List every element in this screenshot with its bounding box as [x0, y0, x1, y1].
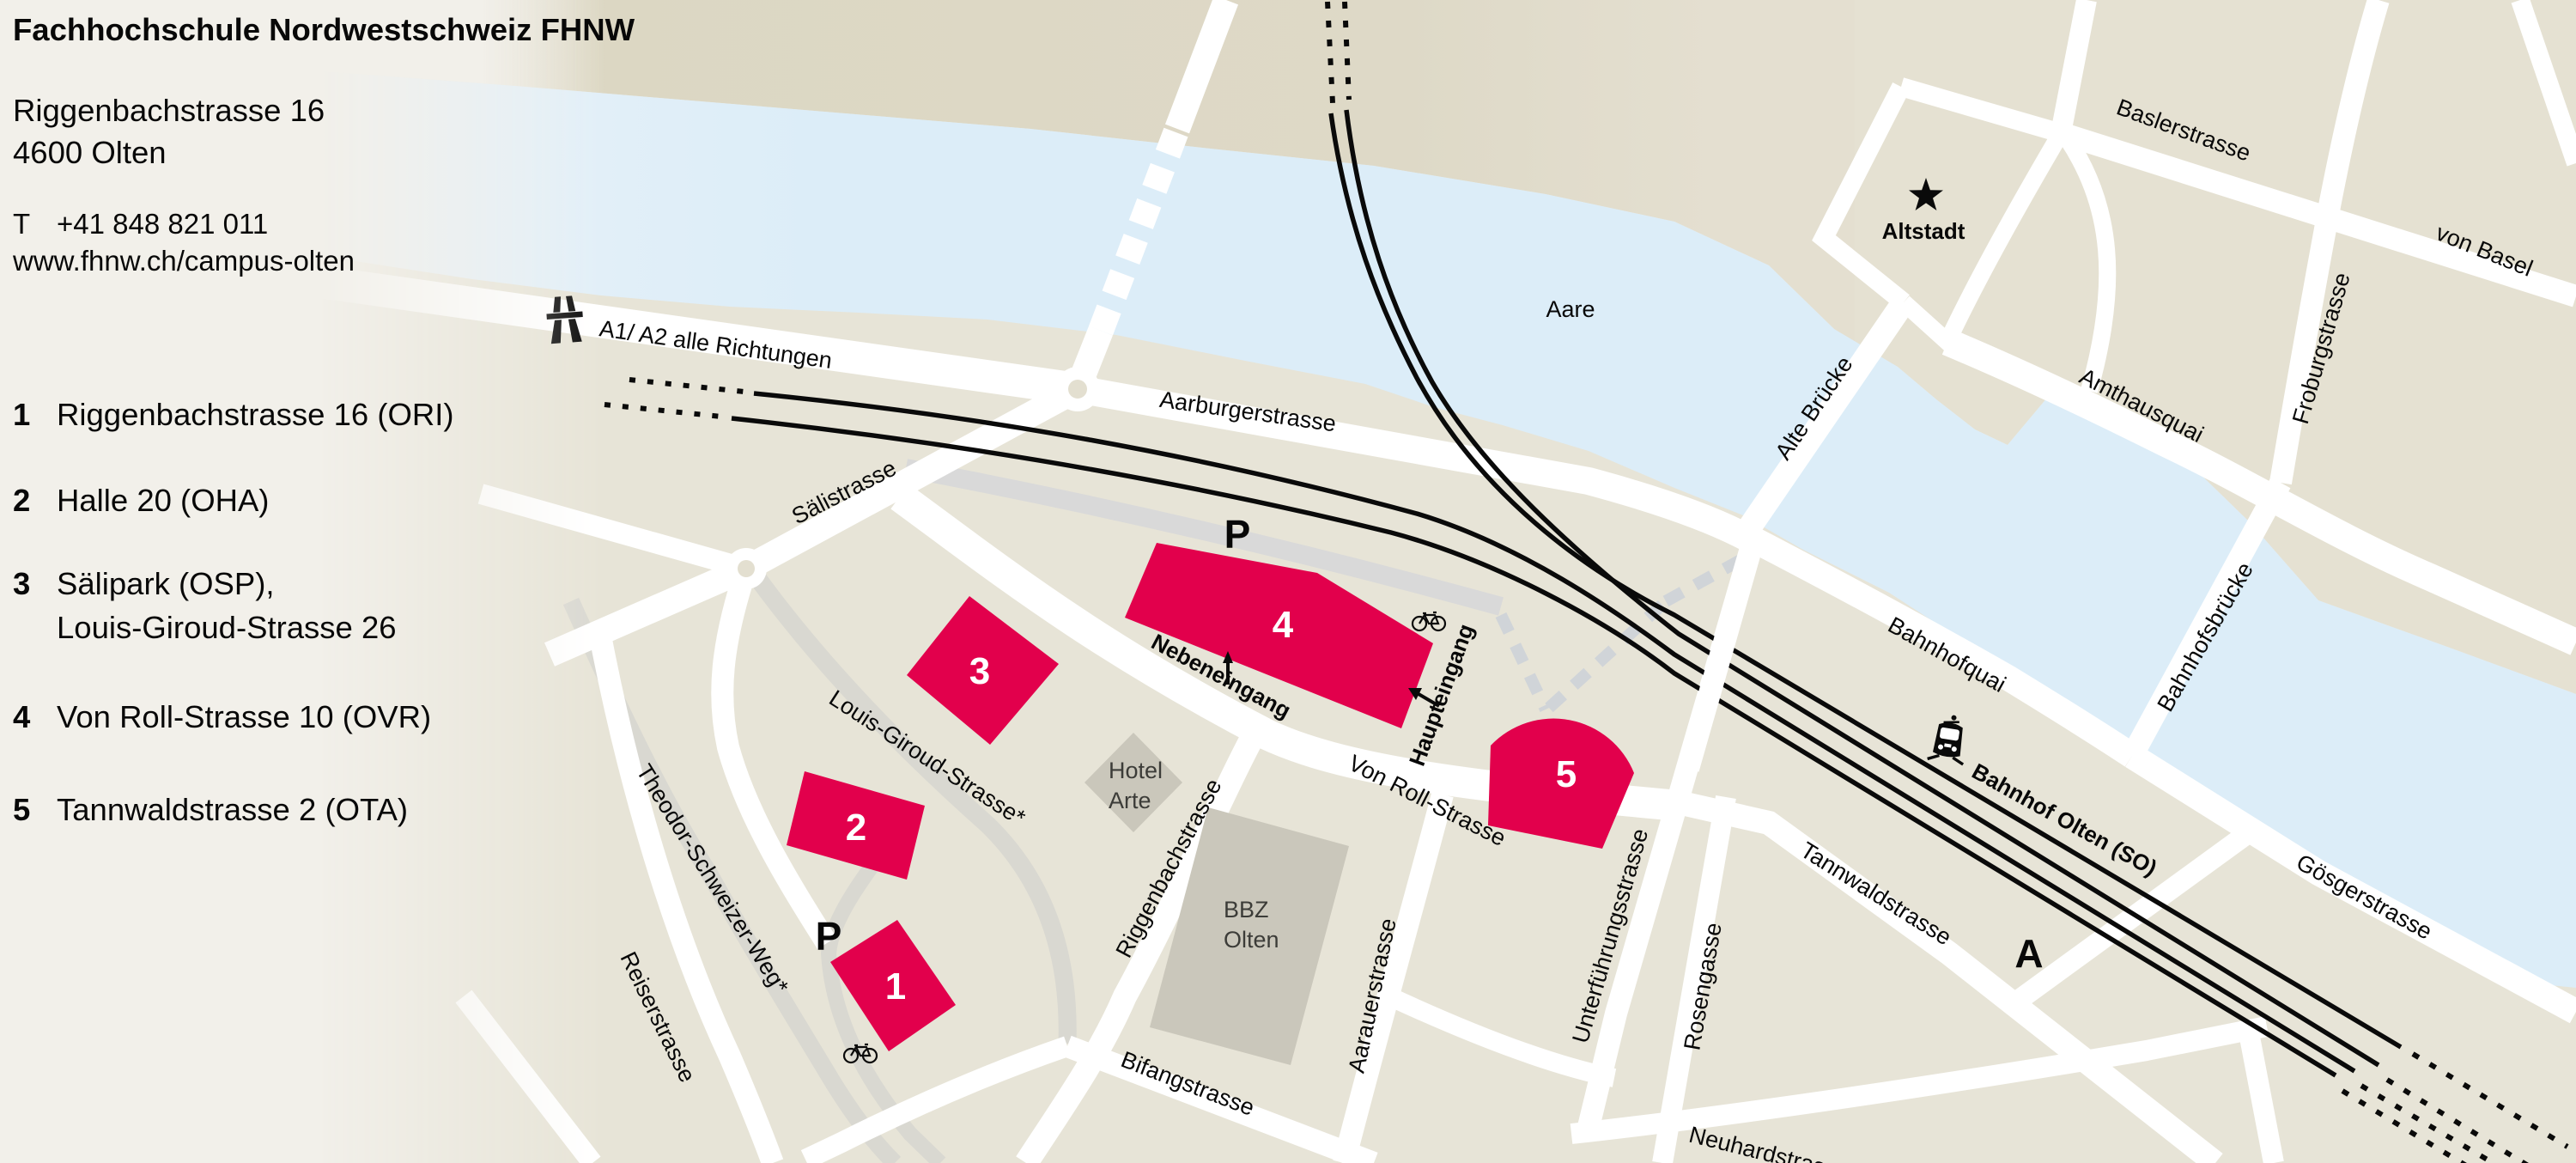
- svg-text:2: 2: [13, 483, 30, 518]
- svg-text:T: T: [13, 208, 30, 240]
- svg-text:P: P: [816, 914, 842, 959]
- svg-text:2: 2: [846, 807, 866, 849]
- svg-text:Riggenbachstrasse 16 (ORI): Riggenbachstrasse 16 (ORI): [57, 397, 454, 432]
- svg-text:Von Roll-Strasse 10 (OVR): Von Roll-Strasse 10 (OVR): [57, 699, 431, 734]
- svg-text:+41 848 821 011: +41 848 821 011: [57, 208, 268, 240]
- svg-text:Halle 20 (OHA): Halle 20 (OHA): [57, 483, 269, 518]
- svg-text:Olten: Olten: [1224, 927, 1279, 953]
- svg-text:1: 1: [885, 965, 906, 1008]
- svg-text:Tannwaldstrasse 2 (OTA): Tannwaldstrasse 2 (OTA): [57, 792, 408, 827]
- svg-text:5: 5: [1556, 753, 1577, 795]
- svg-text:P: P: [1224, 512, 1251, 557]
- svg-text:Fachhochschule Nordwestschweiz: Fachhochschule Nordwestschweiz FHNW: [13, 12, 635, 47]
- svg-text:1: 1: [13, 397, 30, 432]
- svg-text:Altstadt: Altstadt: [1882, 218, 1965, 244]
- svg-text:www.fhnw.ch/campus-olten: www.fhnw.ch/campus-olten: [12, 245, 355, 277]
- svg-text:BBZ: BBZ: [1224, 897, 1269, 922]
- svg-text:Hotel: Hotel: [1109, 758, 1163, 783]
- svg-text:Aare: Aare: [1546, 296, 1595, 322]
- svg-text:4: 4: [13, 699, 31, 734]
- svg-text:3: 3: [13, 566, 30, 601]
- svg-text:Arte: Arte: [1109, 788, 1151, 813]
- svg-text:Sälipark (OSP),: Sälipark (OSP),: [57, 566, 275, 601]
- svg-text:Louis-Giroud-Strasse 26: Louis-Giroud-Strasse 26: [57, 610, 397, 645]
- svg-text:5: 5: [13, 792, 30, 827]
- svg-text:A: A: [2014, 931, 2043, 976]
- svg-text:4: 4: [1273, 604, 1294, 646]
- svg-text:3: 3: [969, 650, 990, 692]
- svg-text:Riggenbachstrasse 16: Riggenbachstrasse 16: [13, 93, 325, 128]
- svg-text:4600 Olten: 4600 Olten: [13, 135, 167, 170]
